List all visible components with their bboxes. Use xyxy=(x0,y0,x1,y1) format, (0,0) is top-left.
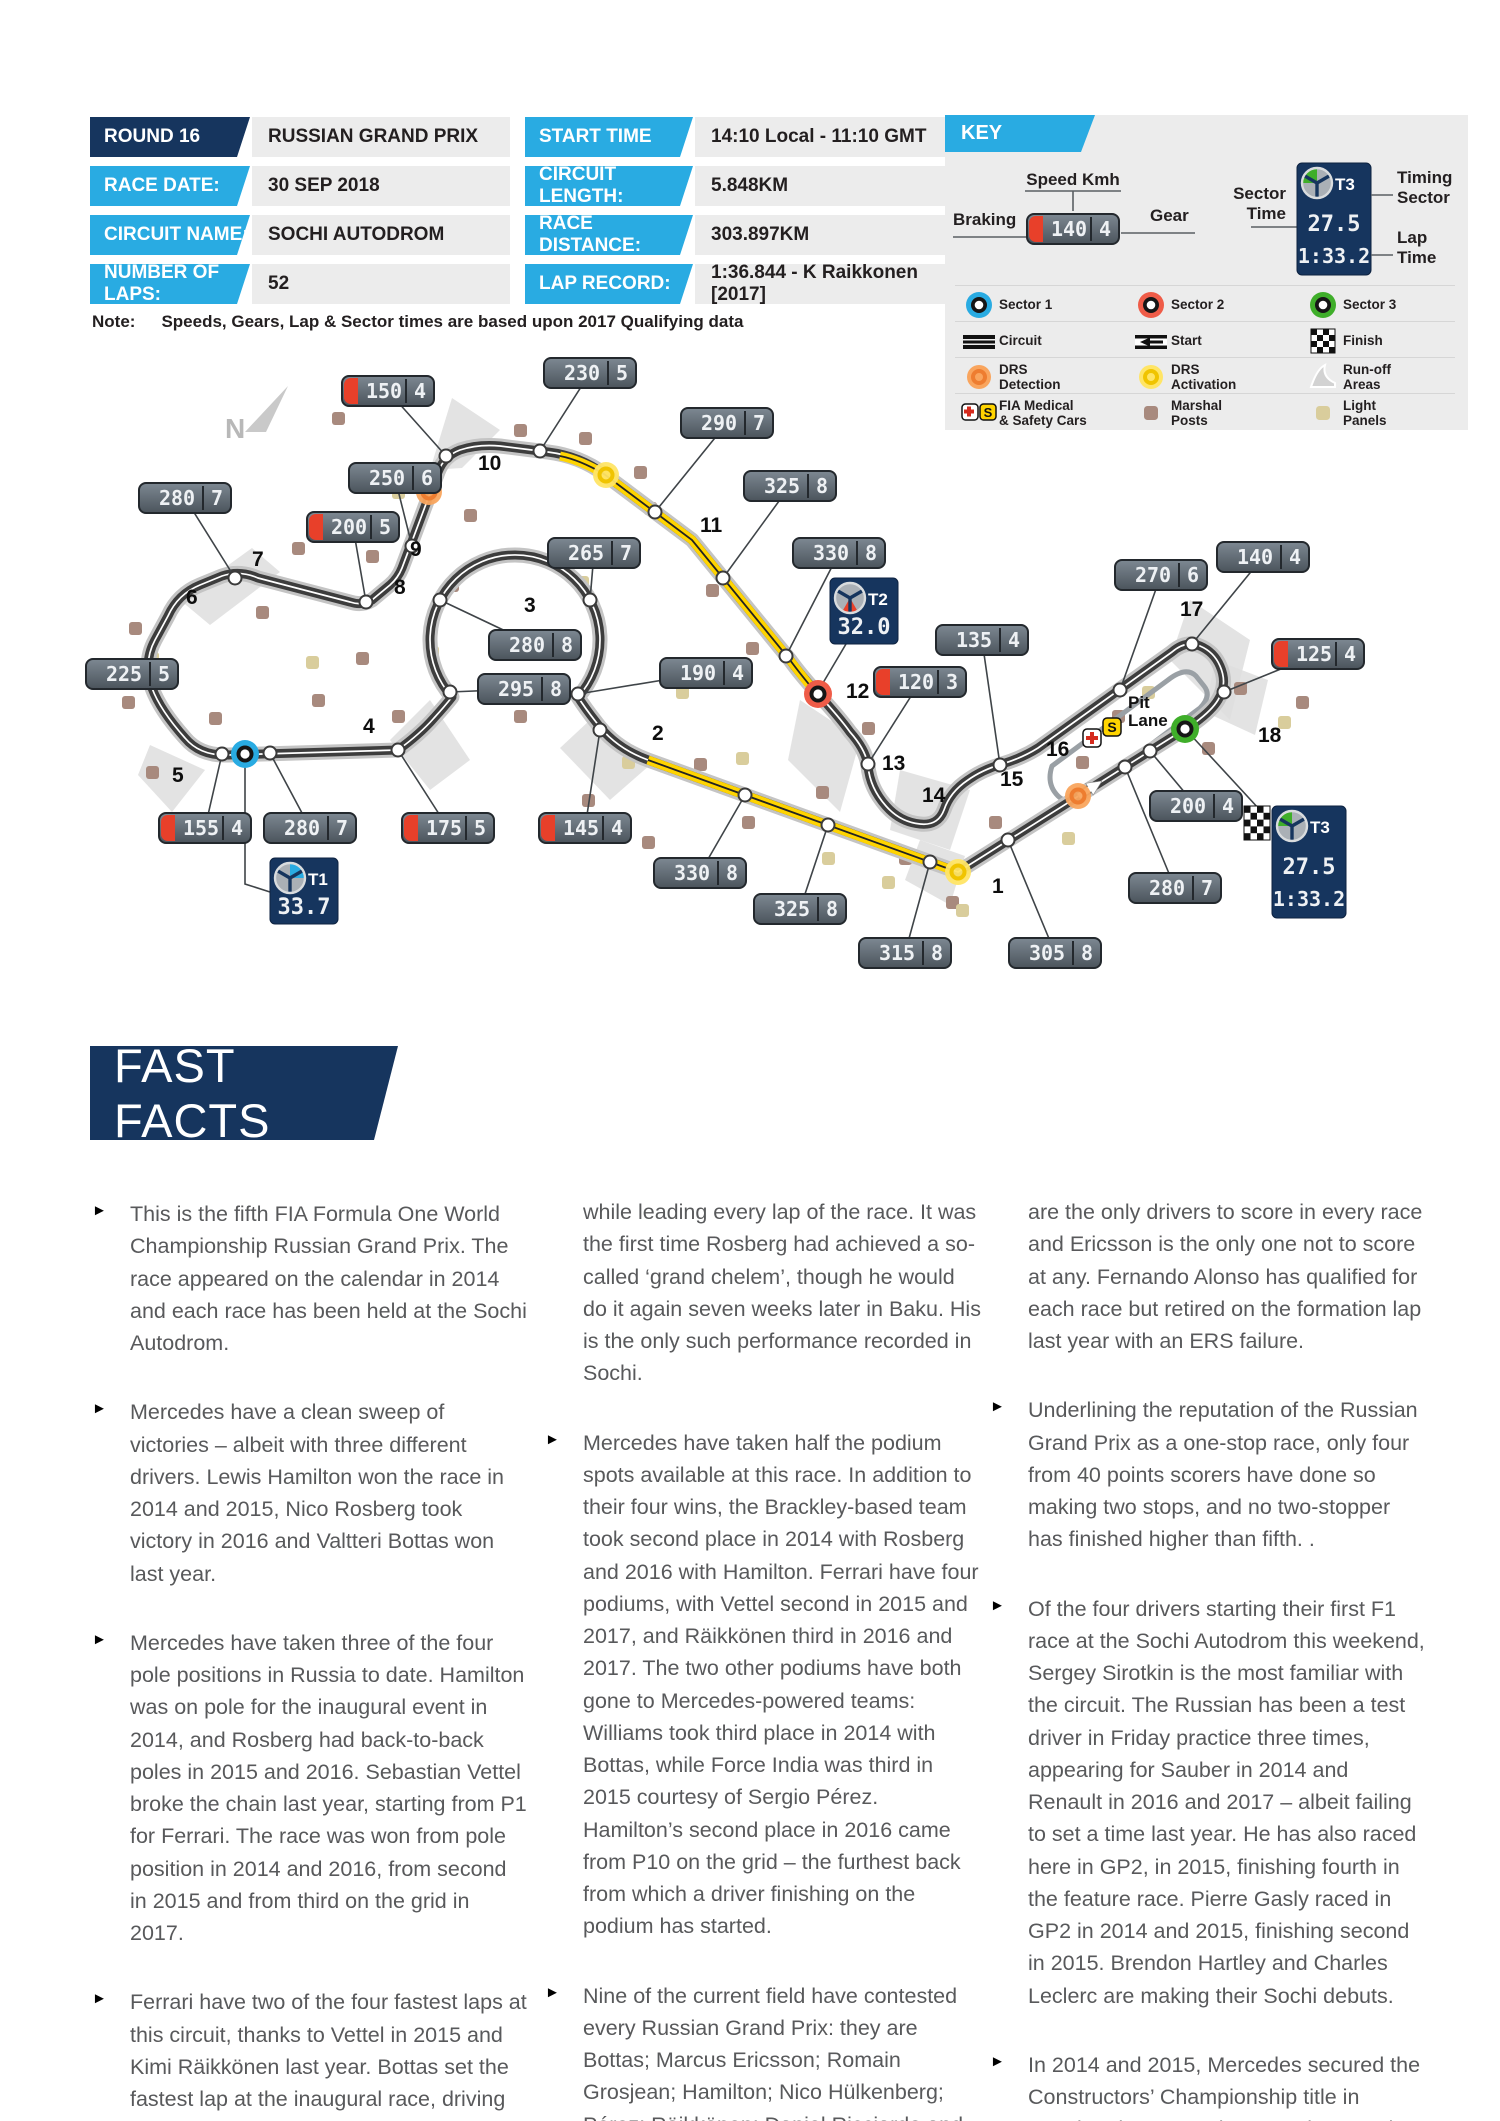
fast-facts-column-3: are the only drivers to score in every r… xyxy=(990,1196,1427,2121)
svg-text:1:33.2: 1:33.2 xyxy=(1298,244,1370,268)
sector-time-box: T327.51:33.2 xyxy=(1297,163,1371,275)
track-anchor xyxy=(264,747,277,760)
key-speed-sector-legend: Speed KmhBraking1404GearSectorTimeT327.5… xyxy=(945,155,1468,288)
track-anchor xyxy=(822,819,835,832)
svg-text:27.5: 27.5 xyxy=(1283,855,1336,880)
svg-text:Time: Time xyxy=(1397,248,1436,267)
note-prefix: Note: xyxy=(92,312,135,331)
track-anchor xyxy=(216,748,229,761)
svg-text:135: 135 xyxy=(956,628,992,652)
svg-text:Speed Kmh: Speed Kmh xyxy=(1026,170,1120,189)
speed-box: 1554 xyxy=(159,813,251,843)
corner-number: 17 xyxy=(1180,598,1203,621)
svg-text:270: 270 xyxy=(1135,563,1171,587)
svg-text:Sector: Sector xyxy=(1233,184,1286,203)
fast-facts-column-1: ►This is the fifth FIA Formula One World… xyxy=(92,1198,529,2121)
marshal-post xyxy=(634,466,647,479)
svg-text:140: 140 xyxy=(1237,545,1273,569)
svg-text:8: 8 xyxy=(561,633,573,657)
info-row: CIRCUIT NAME:SOCHI AUTODROM xyxy=(90,215,510,255)
svg-text:Gear: Gear xyxy=(1150,206,1189,225)
leader-line xyxy=(1125,767,1175,888)
circuit-map: N SPit Lane15042305290725062807200526573… xyxy=(0,350,1500,1050)
info-row: START TIME14:10 Local - 11:10 GMT xyxy=(525,117,945,157)
sector-marker-green xyxy=(1171,715,1199,743)
svg-text:T1: T1 xyxy=(308,870,328,889)
track-anchor xyxy=(1186,638,1199,651)
fact-item: while leading every lap of the race. It … xyxy=(545,1196,982,1390)
track-anchor xyxy=(444,686,457,699)
corner-number: 4 xyxy=(363,715,375,738)
corner-number: 2 xyxy=(652,722,664,745)
track-anchor xyxy=(1119,761,1132,774)
marshal-post xyxy=(862,722,875,735)
svg-text:315: 315 xyxy=(879,941,915,965)
marshal-post xyxy=(146,766,159,779)
svg-text:N: N xyxy=(225,413,245,444)
fact-item: ►Mercedes have taken half the podium spo… xyxy=(545,1427,982,1943)
drs-detection-marker xyxy=(1065,783,1091,809)
track-anchor xyxy=(924,856,937,869)
svg-text:7: 7 xyxy=(211,486,223,510)
corner-number: 7 xyxy=(252,548,264,571)
info-row: CIRCUIT LENGTH:5.848KM xyxy=(525,166,945,206)
sector2-icon xyxy=(1131,287,1171,323)
fact-item: ►Mercedes have a clean sweep of victorie… xyxy=(92,1396,529,1590)
marshal-post xyxy=(579,432,592,445)
svg-text:5: 5 xyxy=(158,662,170,686)
sector3-icon xyxy=(1303,287,1343,323)
svg-text:4: 4 xyxy=(414,379,426,403)
svg-text:5: 5 xyxy=(379,515,391,539)
fia-medical-safety-icon: S xyxy=(1083,718,1121,747)
info-label: CIRCUIT LENGTH: xyxy=(525,166,693,206)
info-label: RACE DATE: xyxy=(90,166,250,206)
svg-text:175: 175 xyxy=(426,816,462,840)
track-anchor xyxy=(572,688,585,701)
marshal-post xyxy=(694,758,707,771)
key-title: KEY xyxy=(945,115,1095,152)
marshal-post xyxy=(706,584,719,597)
svg-text:290: 290 xyxy=(701,411,737,435)
corner-number: 13 xyxy=(882,752,905,775)
marshal-post xyxy=(642,836,655,849)
marshal-post xyxy=(1296,696,1309,709)
fact-item: ►Nine of the current field have conteste… xyxy=(545,1980,982,2121)
fact-text: Underlining the reputation of the Russia… xyxy=(1028,1394,1427,1555)
bullet-icon: ► xyxy=(92,1396,130,1590)
speed-box: 1504 xyxy=(342,376,434,406)
svg-text:8: 8 xyxy=(816,474,828,498)
key-row: Sector 1 Sector 2 Sector 3 xyxy=(945,287,1468,323)
svg-text:8: 8 xyxy=(1081,941,1093,965)
svg-text:190: 190 xyxy=(680,661,716,685)
bullet-icon: ► xyxy=(990,2049,1028,2121)
speed-box: 3308 xyxy=(654,858,746,888)
track-anchor xyxy=(360,596,373,609)
marshal-post xyxy=(312,694,325,707)
speed-box: 1203 xyxy=(874,667,966,697)
svg-text:6: 6 xyxy=(421,466,433,490)
marshal-post xyxy=(256,606,269,619)
info-label: ROUND 16 xyxy=(90,117,250,157)
svg-text:200: 200 xyxy=(1170,794,1206,818)
corner-number: 3 xyxy=(524,594,536,617)
fact-item: ►Ferrari have two of the four fastest la… xyxy=(92,1986,529,2121)
qualifying-data-note: Note:Speeds, Gears, Lap & Sector times a… xyxy=(92,312,743,332)
speed-box: 2255 xyxy=(86,659,178,689)
svg-text:7: 7 xyxy=(1201,876,1213,900)
svg-text:4: 4 xyxy=(1344,642,1356,666)
svg-text:8: 8 xyxy=(826,897,838,921)
svg-text:Timing: Timing xyxy=(1397,168,1452,187)
svg-text:8: 8 xyxy=(726,861,738,885)
speed-box: 2907 xyxy=(681,408,773,438)
fact-text: This is the fifth FIA Formula One World … xyxy=(130,1198,529,1359)
drs-activation-marker xyxy=(945,859,971,885)
speed-box: 2305 xyxy=(544,358,636,388)
track-anchor xyxy=(534,445,547,458)
light-panel xyxy=(306,656,319,669)
speed-box: 3258 xyxy=(744,471,836,501)
fact-text: Mercedes have a clean sweep of victories… xyxy=(130,1396,529,1590)
svg-text:7: 7 xyxy=(336,816,348,840)
info-row: LAP RECORD:1:36.844 - K Raikkonen [2017] xyxy=(525,264,945,304)
svg-text:Braking: Braking xyxy=(953,210,1016,229)
speed-box: 2657 xyxy=(548,538,640,568)
svg-text:Lane: Lane xyxy=(1128,711,1168,730)
light-panel xyxy=(1062,832,1075,845)
speed-box: 1904 xyxy=(660,658,752,688)
svg-text:305: 305 xyxy=(1029,941,1065,965)
track-anchor xyxy=(862,758,875,771)
svg-text:265: 265 xyxy=(568,541,604,565)
fact-item: are the only drivers to score in every r… xyxy=(990,1196,1427,1357)
marshal-post xyxy=(366,550,379,563)
fact-item: ►This is the fifth FIA Formula One World… xyxy=(92,1198,529,1359)
sector-time-box: T133.7 xyxy=(270,858,338,924)
compass-north-icon: N xyxy=(225,386,288,444)
svg-text:3: 3 xyxy=(946,670,958,694)
svg-text:230: 230 xyxy=(564,361,600,385)
svg-text:5: 5 xyxy=(616,361,628,385)
corner-number: 6 xyxy=(186,586,198,609)
svg-text:5: 5 xyxy=(474,816,486,840)
track-anchor xyxy=(1144,745,1157,758)
bullet-icon: ► xyxy=(545,1980,583,2121)
fact-text: Of the four drivers starting their first… xyxy=(1028,1593,1427,2012)
svg-text:125: 125 xyxy=(1296,642,1332,666)
info-value: SOCHI AUTODROM xyxy=(252,215,510,255)
bullet-icon: ► xyxy=(92,1198,130,1359)
svg-text:Sector: Sector xyxy=(1397,188,1450,207)
sector-marker-cyan xyxy=(231,740,259,768)
bullet-icon: ► xyxy=(92,1986,130,2121)
fact-item: ►Underlining the reputation of the Russi… xyxy=(990,1394,1427,1555)
corner-number: 14 xyxy=(922,784,946,807)
light-panel xyxy=(822,852,835,865)
key-item-sector2: Sector 2 xyxy=(1131,287,1299,323)
svg-text:280: 280 xyxy=(284,816,320,840)
svg-text:330: 330 xyxy=(813,541,849,565)
svg-text:Time: Time xyxy=(1247,204,1286,223)
speed-box: 2807 xyxy=(139,483,231,513)
fast-facts-column-2: while leading every lap of the race. It … xyxy=(545,1196,982,2121)
svg-text:S: S xyxy=(1107,719,1116,735)
fact-text: Ferrari have two of the four fastest lap… xyxy=(130,1986,529,2121)
svg-text:8: 8 xyxy=(931,941,943,965)
fact-item: ►Of the four drivers starting their firs… xyxy=(990,1593,1427,2012)
track-anchor xyxy=(717,572,730,585)
svg-text:140: 140 xyxy=(1051,217,1087,241)
svg-text:145: 145 xyxy=(563,816,599,840)
marshal-post xyxy=(742,816,755,829)
svg-text:4: 4 xyxy=(1099,217,1111,241)
info-row: RACE DISTANCE:303.897KM xyxy=(525,215,945,255)
fact-text: are the only drivers to score in every r… xyxy=(1028,1196,1427,1357)
fact-text: Nine of the current field have contested… xyxy=(583,1980,982,2121)
sector-time-box: T232.0 xyxy=(830,578,898,644)
marshal-post xyxy=(356,652,369,665)
track-anchor xyxy=(649,506,662,519)
svg-text:6: 6 xyxy=(1187,563,1199,587)
corner-number: 10 xyxy=(478,452,501,475)
info-value: 52 xyxy=(252,264,510,304)
track-anchor xyxy=(229,572,242,585)
bullet-icon: ► xyxy=(92,1627,130,1950)
svg-text:120: 120 xyxy=(898,670,934,694)
light-panel xyxy=(956,904,969,917)
leader-line xyxy=(982,640,1000,765)
info-label: CIRCUIT NAME: xyxy=(90,215,250,255)
svg-text:4: 4 xyxy=(1008,628,1020,652)
corner-number: 8 xyxy=(394,576,406,599)
info-value: 14:10 Local - 11:10 GMT xyxy=(695,117,945,157)
marshal-post xyxy=(122,696,135,709)
track-anchor xyxy=(440,450,453,463)
info-label: START TIME xyxy=(525,117,693,157)
speed-box: 1354 xyxy=(936,625,1028,655)
fact-item: ►Mercedes have taken three of the four p… xyxy=(92,1627,529,1950)
svg-text:225: 225 xyxy=(106,662,142,686)
marshal-post xyxy=(1076,756,1089,769)
marshal-post xyxy=(514,710,527,723)
fact-item: ►In 2014 and 2015, Mercedes secured the … xyxy=(990,2049,1427,2121)
track-anchor xyxy=(1002,834,1015,847)
track-anchor xyxy=(434,594,447,607)
svg-text:4: 4 xyxy=(611,816,623,840)
info-value: 30 SEP 2018 xyxy=(252,166,510,206)
marshal-post xyxy=(464,509,477,522)
svg-text:T3: T3 xyxy=(1335,175,1355,194)
svg-text:250: 250 xyxy=(369,466,405,490)
bullet-icon: ► xyxy=(990,1394,1028,1555)
drs-activation-marker xyxy=(593,462,619,488)
svg-text:325: 325 xyxy=(764,474,800,498)
bullet-icon: ► xyxy=(545,1427,583,1943)
svg-text:280: 280 xyxy=(1149,876,1185,900)
speed-box: 3308 xyxy=(793,538,885,568)
svg-text:8: 8 xyxy=(550,677,562,701)
key-item-sector1: Sector 1 xyxy=(959,287,1127,323)
track-anchor xyxy=(584,594,597,607)
info-value: 1:36.844 - K Raikkonen [2017] xyxy=(695,264,945,304)
sector-marker-red xyxy=(804,680,832,708)
svg-text:7: 7 xyxy=(620,541,632,565)
info-label: NUMBER OF LAPS: xyxy=(90,264,250,304)
svg-text:27.5: 27.5 xyxy=(1308,212,1361,237)
marshal-post xyxy=(746,642,759,655)
corner-number: 18 xyxy=(1258,724,1282,747)
svg-text:295: 295 xyxy=(498,677,534,701)
marshal-post xyxy=(514,424,527,437)
fact-text: In 2014 and 2015, Mercedes secured the C… xyxy=(1028,2049,1427,2121)
info-value: RUSSIAN GRAND PRIX xyxy=(252,117,510,157)
corner-number: 15 xyxy=(1000,768,1024,791)
svg-text:150: 150 xyxy=(366,379,402,403)
marshal-post xyxy=(292,542,305,555)
svg-text:T2: T2 xyxy=(868,590,888,609)
svg-text:33.7: 33.7 xyxy=(278,895,331,920)
track-anchor xyxy=(1218,686,1231,699)
info-row: ROUND 16RUSSIAN GRAND PRIX xyxy=(90,117,510,157)
light-panel xyxy=(736,752,749,765)
track-anchor xyxy=(1114,684,1127,697)
svg-text:1:33.2: 1:33.2 xyxy=(1273,887,1345,911)
marshal-post xyxy=(989,816,1002,829)
marshal-post xyxy=(816,786,829,799)
speed-box: 3258 xyxy=(754,894,846,924)
track-anchor xyxy=(739,789,752,802)
speed-box: 1755 xyxy=(402,813,494,843)
fast-facts-banner: FAST FACTS xyxy=(90,1046,398,1140)
speed-box: 3058 xyxy=(1009,938,1101,968)
speed-box: 2807 xyxy=(1129,873,1221,903)
fact-text: Mercedes have taken three of the four po… xyxy=(130,1627,529,1950)
bullet-icon xyxy=(545,1196,583,1390)
svg-text:330: 330 xyxy=(674,861,710,885)
corner-number: 16 xyxy=(1046,738,1069,761)
svg-text:4: 4 xyxy=(231,816,243,840)
corner-number: 12 xyxy=(846,680,869,703)
info-label: LAP RECORD: xyxy=(525,264,693,304)
sector1-icon xyxy=(959,287,999,323)
svg-text:32.0: 32.0 xyxy=(838,615,891,640)
svg-text:Lap: Lap xyxy=(1397,228,1427,247)
bullet-icon: ► xyxy=(990,1593,1028,2012)
marshal-post xyxy=(332,412,345,425)
speed-box: 2706 xyxy=(1115,560,1207,590)
speed-box: 3158 xyxy=(859,938,951,968)
fast-facts-title: FAST FACTS xyxy=(114,1038,398,1148)
speed-box: 1404 xyxy=(1027,214,1119,244)
corner-number: 5 xyxy=(172,764,184,787)
speed-box: 1454 xyxy=(539,813,631,843)
info-value: 5.848KM xyxy=(695,166,945,206)
svg-text:4: 4 xyxy=(1222,794,1234,818)
leader-line xyxy=(1008,840,1055,953)
svg-text:4: 4 xyxy=(732,661,744,685)
marshal-post xyxy=(209,712,222,725)
corner-number: 11 xyxy=(700,514,723,537)
svg-text:4: 4 xyxy=(1289,545,1301,569)
speed-box: 2004 xyxy=(1150,791,1242,821)
info-value: 303.897KM xyxy=(695,215,945,255)
corner-number: 1 xyxy=(992,875,1004,898)
track-anchor xyxy=(594,724,607,737)
info-row: NUMBER OF LAPS:52 xyxy=(90,264,510,304)
speed-box: 2958 xyxy=(478,674,570,704)
corner-number: 9 xyxy=(410,538,422,561)
svg-text:8: 8 xyxy=(865,541,877,565)
sector-time-box: T327.51:33.2 xyxy=(1272,806,1346,918)
fact-text: Mercedes have taken half the podium spot… xyxy=(583,1427,982,1943)
info-label: RACE DISTANCE: xyxy=(525,215,693,255)
marshal-post xyxy=(129,622,142,635)
svg-text:T3: T3 xyxy=(1310,818,1330,837)
page: ROUND 16RUSSIAN GRAND PRIXRACE DATE:30 S… xyxy=(0,0,1500,2121)
speed-box: 2005 xyxy=(307,512,399,542)
speed-box: 1404 xyxy=(1217,542,1309,572)
bullet-icon xyxy=(990,1196,1028,1357)
svg-text:280: 280 xyxy=(509,633,545,657)
track-anchor xyxy=(780,650,793,663)
svg-text:200: 200 xyxy=(331,515,367,539)
svg-text:155: 155 xyxy=(183,816,219,840)
track-anchor xyxy=(392,744,405,757)
svg-text:280: 280 xyxy=(159,486,195,510)
light-panel xyxy=(882,876,895,889)
fact-text: while leading every lap of the race. It … xyxy=(583,1196,982,1390)
svg-text:7: 7 xyxy=(753,411,765,435)
svg-text:325: 325 xyxy=(774,897,810,921)
speed-box: 1254 xyxy=(1272,639,1364,669)
speed-box: 2808 xyxy=(489,630,581,660)
info-row: RACE DATE:30 SEP 2018 xyxy=(90,166,510,206)
finish-flag-icon xyxy=(1244,806,1270,840)
marshal-post xyxy=(392,710,405,723)
key-item-sector3: Sector 3 xyxy=(1303,287,1471,323)
pit-lane-label: Pit xyxy=(1128,693,1150,712)
speed-box: 2506 xyxy=(349,463,441,493)
speed-box: 2807 xyxy=(264,813,356,843)
